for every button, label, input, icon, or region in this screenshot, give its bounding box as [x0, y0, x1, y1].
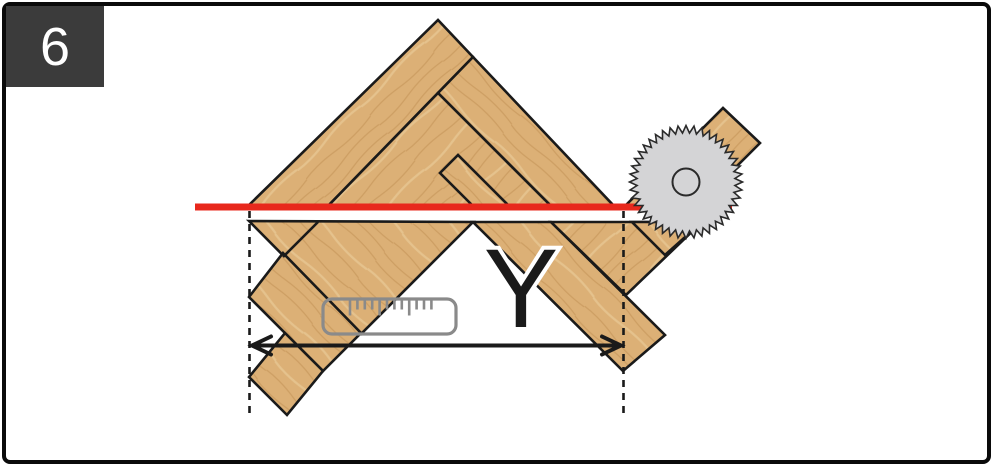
- diagram-panel: 6 Y: [0, 0, 994, 467]
- dimension-label: Y: [484, 226, 559, 351]
- step-number-badge: 6: [6, 6, 104, 87]
- saw-blade-arbor-hole: [673, 169, 700, 196]
- herringbone-cutting-diagram: Y: [0, 0, 994, 467]
- step-number: 6: [40, 16, 70, 78]
